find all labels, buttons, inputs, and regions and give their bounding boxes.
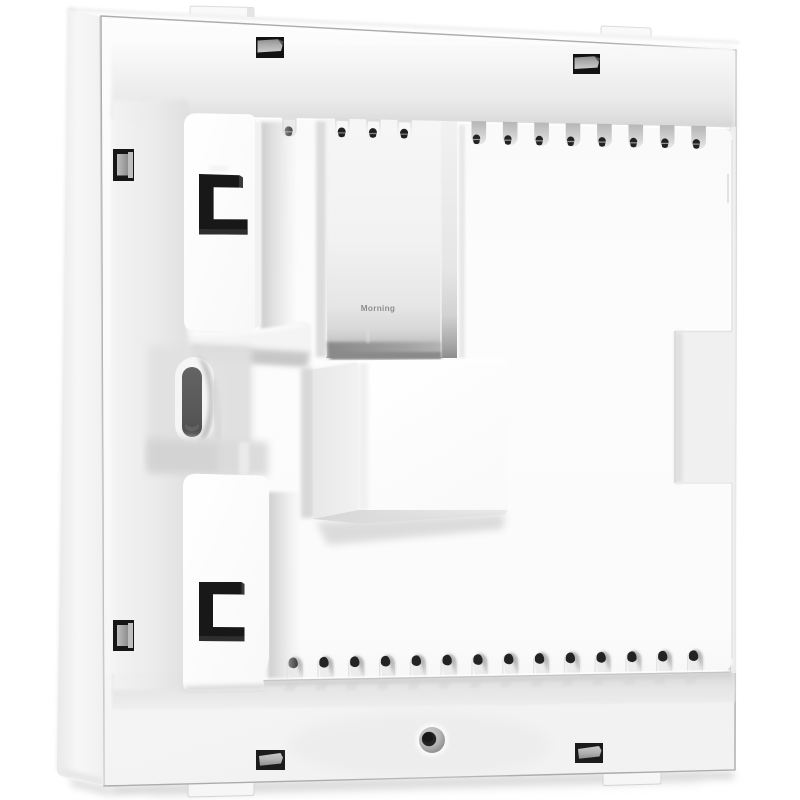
svg-text:Morning: Morning bbox=[361, 304, 395, 313]
